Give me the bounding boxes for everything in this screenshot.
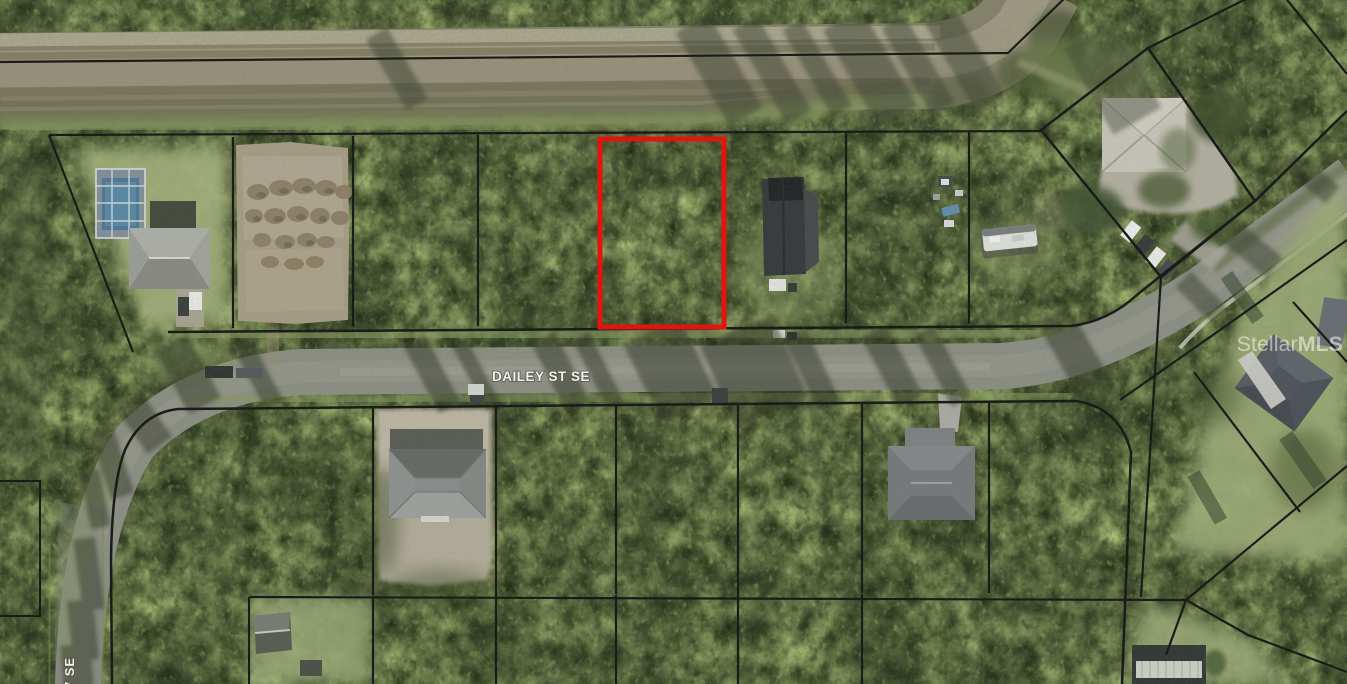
svg-text:AV SE: AV SE	[62, 657, 77, 684]
svg-text:DAILEY ST SE: DAILEY ST SE	[492, 369, 590, 384]
svg-text:StellarMLS: StellarMLS	[1237, 332, 1343, 356]
